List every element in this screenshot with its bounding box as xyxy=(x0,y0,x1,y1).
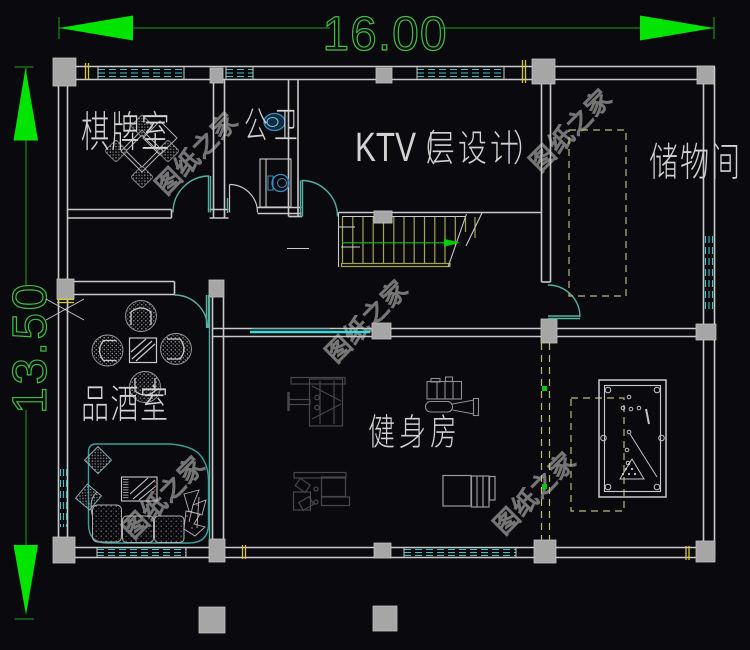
svg-text:16.00: 16.00 xyxy=(322,8,447,61)
svg-text:KTV: KTV xyxy=(355,124,416,170)
